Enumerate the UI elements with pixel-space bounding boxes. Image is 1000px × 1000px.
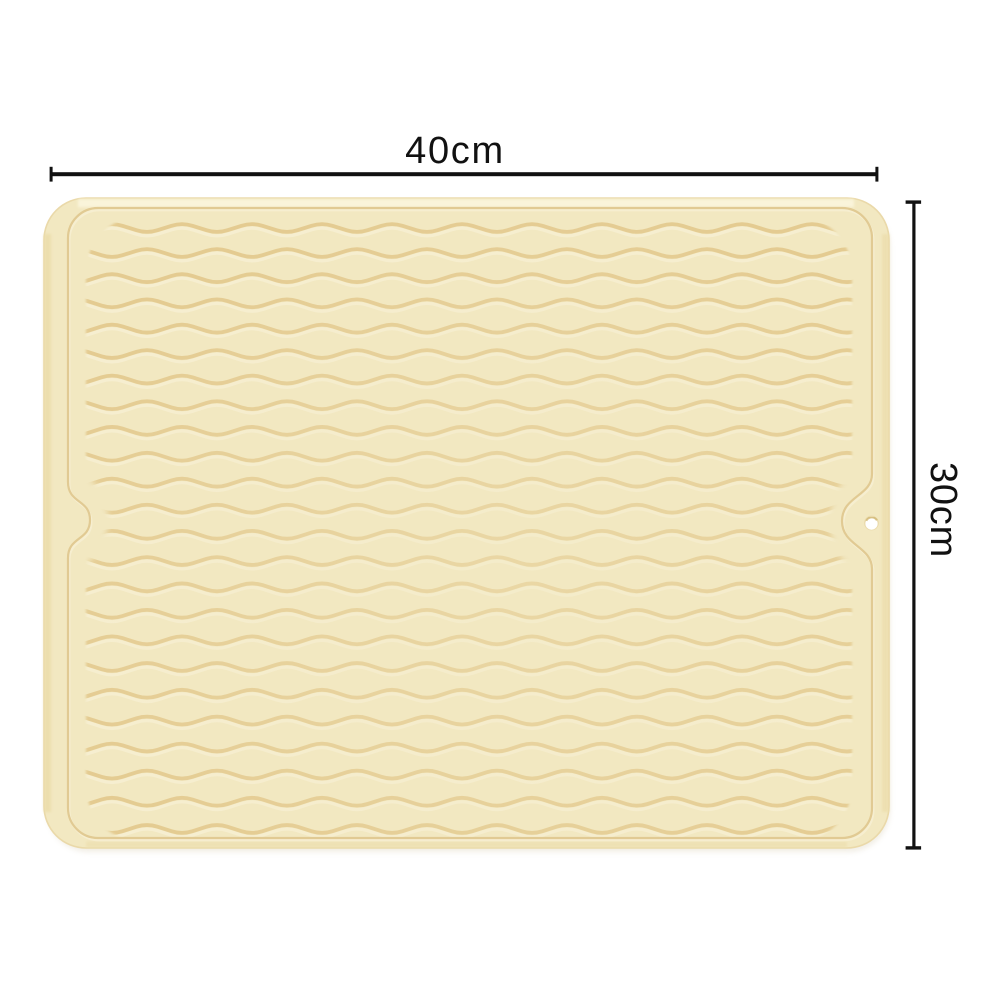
svg-text:40cm: 40cm: [405, 130, 505, 172]
svg-text:30cm: 30cm: [922, 462, 964, 558]
